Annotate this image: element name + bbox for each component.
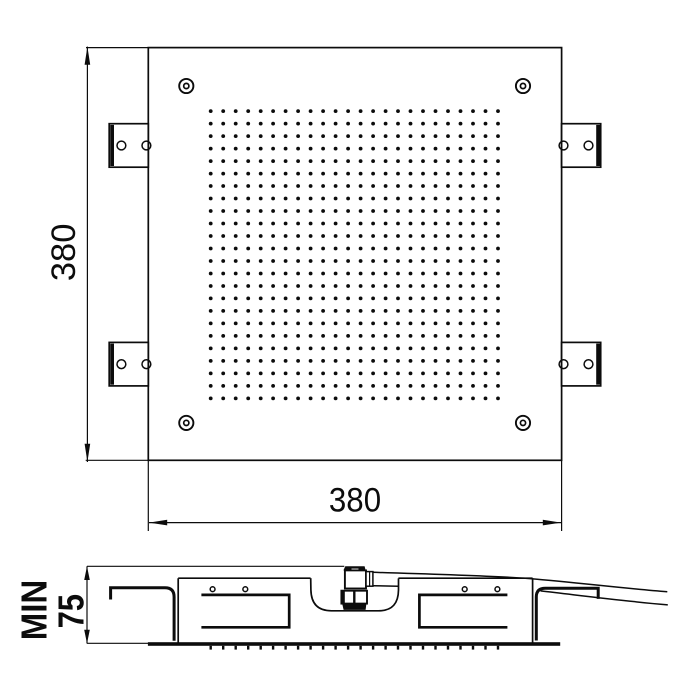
svg-text:380: 380 (45, 224, 83, 282)
svg-text:MIN: MIN (15, 580, 55, 640)
svg-text:75: 75 (52, 594, 92, 628)
svg-text:380: 380 (329, 480, 381, 519)
